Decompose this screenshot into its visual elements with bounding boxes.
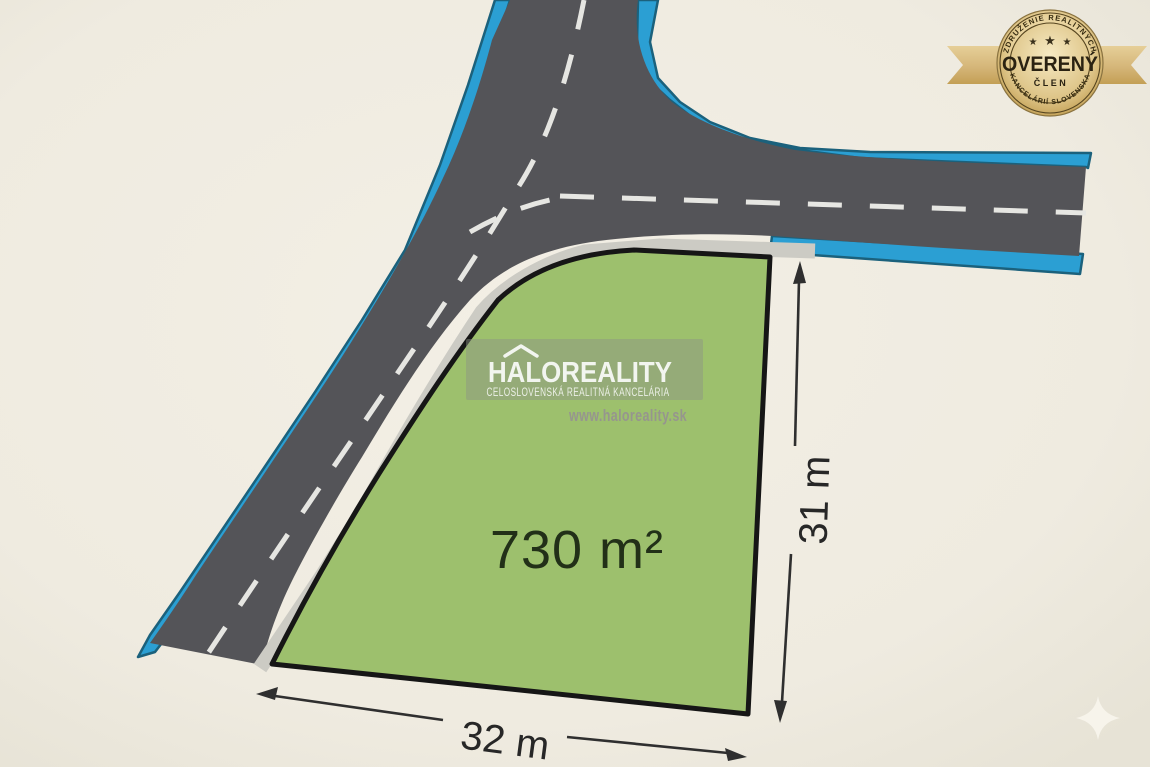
parcel-area-label: 730 m² — [490, 520, 664, 580]
watermark-brand: HALOREALITY — [488, 357, 672, 389]
star-icon: ★ — [1063, 37, 1072, 48]
land-plot-map: 730 m² HALOREALITY CELOSLOVENSKÁ REALITN… — [0, 0, 1150, 767]
badge-title: OVERENÝ — [1002, 52, 1098, 76]
star-icon: ★ — [1044, 34, 1056, 49]
watermark-tagline: CELOSLOVENSKÁ REALITNÁ KANCELÁRIA — [487, 386, 670, 399]
watermark-website: www.haloreality.sk — [568, 406, 687, 425]
badge-subtitle: ČLEN — [1034, 77, 1069, 88]
star-icon: ★ — [1029, 37, 1038, 48]
plot-map-svg: 730 m² HALOREALITY CELOSLOVENSKÁ REALITN… — [0, 0, 1150, 767]
depth-dim-label: 31 m — [791, 455, 838, 545]
